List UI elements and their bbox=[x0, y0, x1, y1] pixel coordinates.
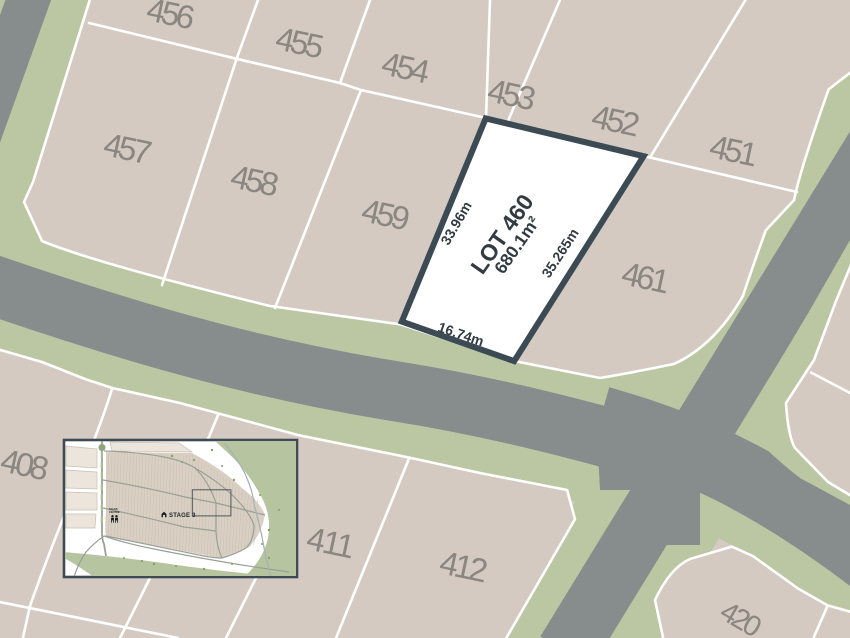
svg-text:CENTRE: CENTRE bbox=[109, 510, 120, 514]
svg-text:STAGE 3: STAGE 3 bbox=[169, 513, 196, 519]
